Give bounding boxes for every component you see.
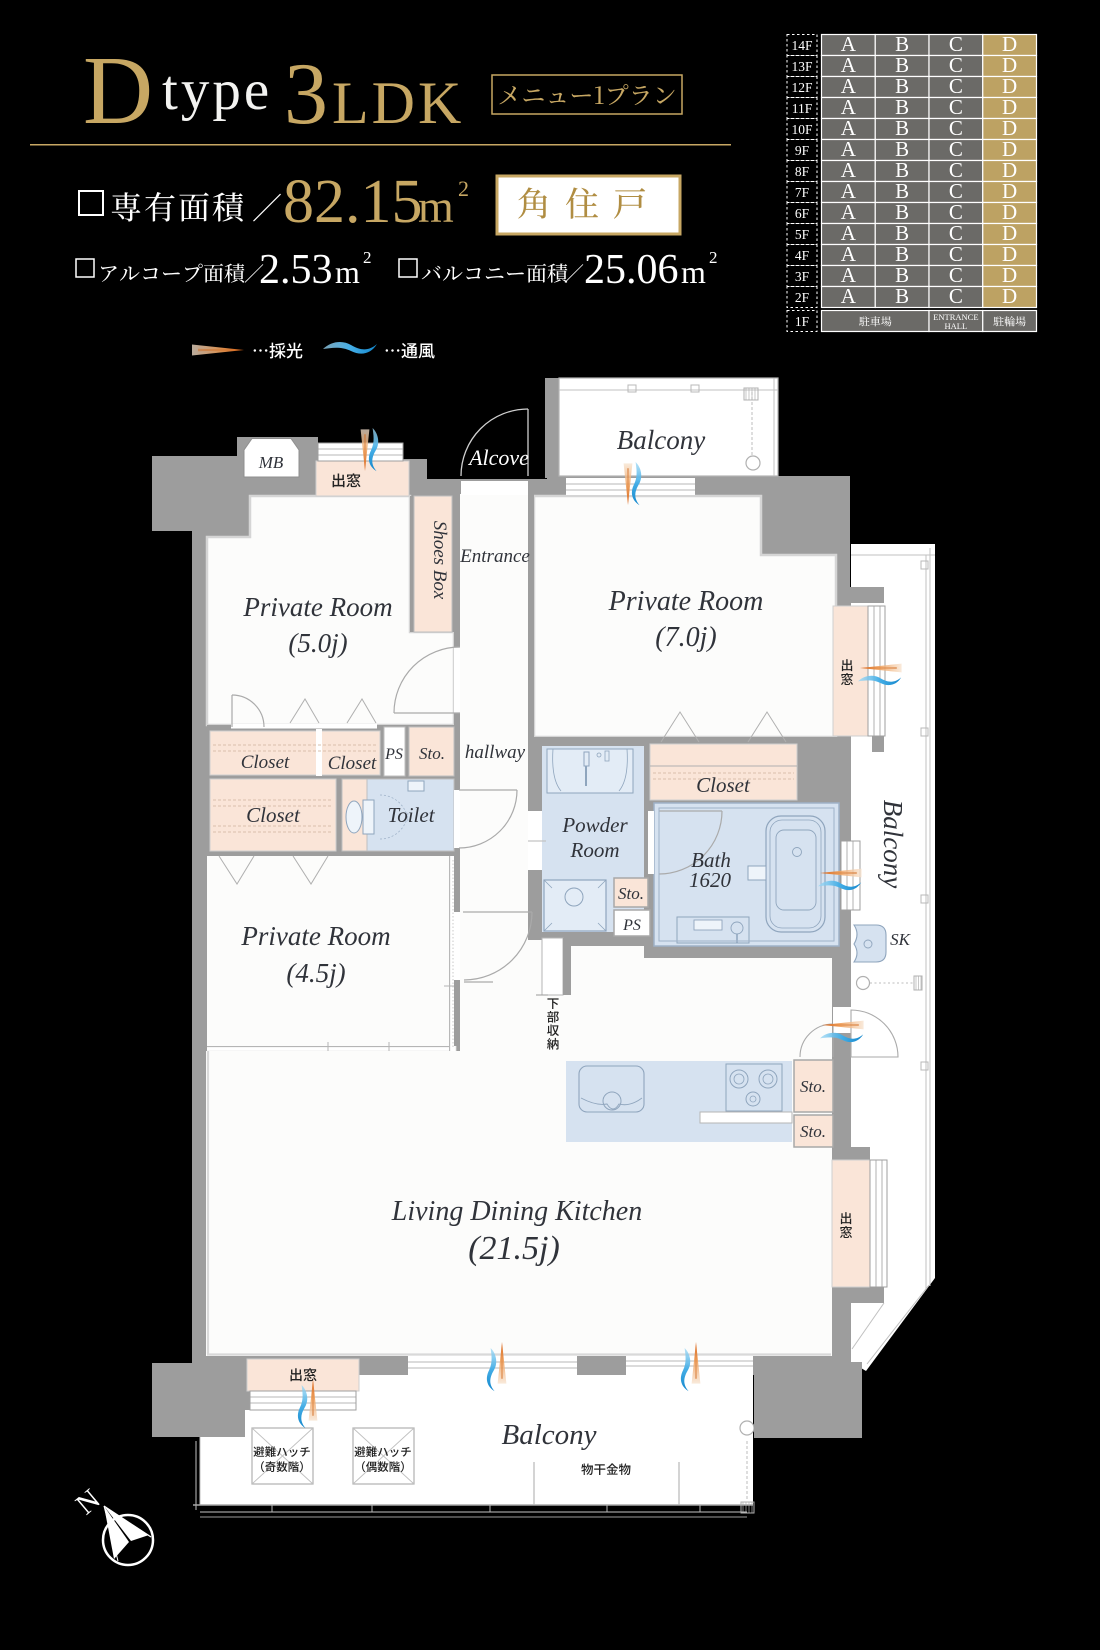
svg-text:2: 2	[709, 248, 718, 267]
svg-text:Private Room: Private Room	[242, 592, 392, 622]
svg-text:5F: 5F	[795, 227, 810, 242]
svg-text:Sto.: Sto.	[419, 744, 445, 763]
svg-text:(5.0j): (5.0j)	[288, 628, 347, 658]
svg-text:2: 2	[458, 176, 469, 201]
svg-text:Toilet: Toilet	[387, 803, 435, 827]
svg-text:Closet: Closet	[328, 753, 377, 774]
svg-text:m: m	[681, 254, 706, 290]
svg-text:8F: 8F	[795, 164, 810, 179]
svg-text:D: D	[83, 37, 153, 144]
svg-text:PS: PS	[384, 746, 403, 763]
svg-text:Powder: Powder	[561, 813, 628, 837]
svg-text:m: m	[335, 254, 360, 290]
svg-text:PS: PS	[622, 917, 641, 934]
svg-text:type: type	[162, 59, 272, 122]
svg-text:Closet: Closet	[246, 803, 301, 827]
svg-text:SK: SK	[890, 930, 912, 949]
svg-text:25.06: 25.06	[584, 247, 679, 293]
svg-text:12F: 12F	[791, 80, 813, 95]
svg-text:7F: 7F	[795, 185, 810, 200]
svg-text:m: m	[418, 181, 454, 232]
svg-text:hallway: hallway	[465, 742, 526, 763]
svg-text:2: 2	[363, 248, 372, 267]
svg-text:3: 3	[284, 46, 328, 143]
svg-text:10F: 10F	[791, 122, 813, 137]
svg-text:4F: 4F	[795, 248, 810, 263]
svg-text:A: A	[841, 284, 857, 308]
svg-text:11F: 11F	[792, 101, 813, 116]
svg-text:1620: 1620	[689, 868, 732, 892]
svg-text:Room: Room	[570, 838, 620, 862]
svg-text:Balcony: Balcony	[501, 1419, 596, 1451]
svg-text:Sto.: Sto.	[800, 1077, 826, 1096]
svg-text:MB: MB	[258, 453, 284, 472]
svg-text:14F: 14F	[791, 38, 813, 53]
svg-text:Sto.: Sto.	[618, 884, 644, 903]
svg-text:Alcove: Alcove	[467, 445, 529, 470]
svg-text:1F: 1F	[795, 314, 810, 329]
svg-text:(21.5j): (21.5j)	[468, 1230, 560, 1267]
svg-text:LDK: LDK	[332, 70, 464, 136]
svg-text:Closet: Closet	[696, 773, 751, 797]
svg-text:D: D	[1002, 284, 1017, 308]
svg-text:(4.5j): (4.5j)	[286, 958, 345, 988]
svg-text:Private Room: Private Room	[240, 921, 390, 951]
svg-text:Shoes Box: Shoes Box	[429, 521, 450, 600]
svg-text:HALL: HALL	[945, 321, 968, 331]
svg-text:6F: 6F	[795, 206, 810, 221]
svg-text:Balcony: Balcony	[878, 800, 908, 888]
svg-text:2.53: 2.53	[259, 247, 333, 293]
svg-text:2F: 2F	[795, 290, 810, 305]
svg-text:Balcony: Balcony	[617, 425, 705, 455]
svg-text:9F: 9F	[795, 143, 810, 158]
svg-text:Living Dining Kitchen: Living Dining Kitchen	[391, 1196, 642, 1227]
svg-text:82.15: 82.15	[283, 168, 423, 236]
svg-text:3F: 3F	[795, 269, 810, 284]
svg-text:Private Room: Private Room	[608, 586, 764, 617]
svg-text:(7.0j): (7.0j)	[655, 622, 716, 653]
svg-text:B: B	[895, 284, 909, 308]
svg-text:C: C	[949, 284, 963, 308]
svg-text:13F: 13F	[791, 59, 813, 74]
svg-text:Closet: Closet	[241, 752, 290, 773]
svg-text:Entrance: Entrance	[459, 546, 530, 567]
svg-text:Sto.: Sto.	[800, 1122, 826, 1141]
